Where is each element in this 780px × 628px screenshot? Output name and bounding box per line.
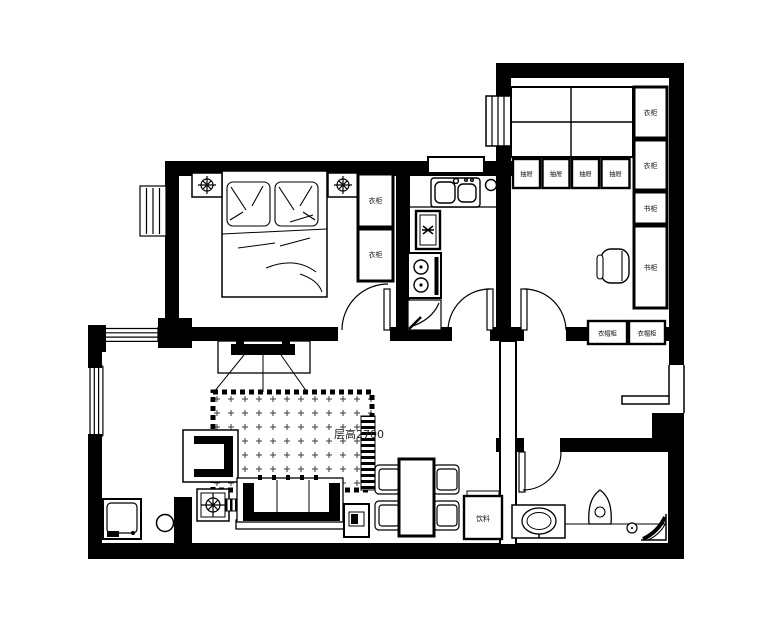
dining-chair <box>433 501 459 530</box>
bedroom-door <box>342 284 390 330</box>
double-bed <box>222 171 327 297</box>
bedroom-wardrobes <box>358 174 393 281</box>
coat-cabinet-right-label: 衣帽柜 <box>638 329 657 338</box>
wall-living-left-lower <box>88 434 102 559</box>
sofa-side-table <box>344 504 369 537</box>
wall-bathroom-right <box>668 413 684 559</box>
nightstand-left <box>192 173 222 197</box>
floor-plan-canvas: 衣柜 衣柜 <box>0 0 780 628</box>
living-room-group <box>103 340 502 539</box>
corner-counter <box>408 300 441 330</box>
floor-outlet <box>225 499 238 511</box>
bedroom-wardrobe-top-label: 衣柜 <box>369 196 383 205</box>
window-bedroom-bay <box>140 186 166 236</box>
tv-icon <box>231 344 295 355</box>
coat-cabinet-left-label: 衣帽柜 <box>598 329 617 338</box>
toilet <box>587 490 613 524</box>
nightstand-right <box>328 173 358 197</box>
study-side-cabinets <box>634 87 667 308</box>
wall-hall-pier <box>490 327 524 341</box>
drawer-4-label: 抽屉 <box>609 169 622 178</box>
wall-living-pier <box>158 318 192 348</box>
shower-corner <box>641 514 666 540</box>
wall-top-study <box>496 63 684 78</box>
window-study-left <box>486 96 511 146</box>
study-wardrobe-top-label: 衣柜 <box>644 108 658 117</box>
bookcase-bottom-label: 书柜 <box>644 263 658 272</box>
wall-bedroom-left <box>165 161 179 341</box>
study-group <box>511 87 667 344</box>
wall-living-left-upper <box>88 325 102 368</box>
corner-cabinet <box>103 499 141 539</box>
window-living-left <box>88 366 103 436</box>
speaker-side-table <box>197 489 229 521</box>
wall-step-right <box>622 365 684 413</box>
drawer-2-label: 抽屉 <box>550 169 563 178</box>
floor-plan-svg: 衣柜 衣柜 <box>0 0 780 628</box>
bedroom-wardrobe-bottom-label: 衣柜 <box>369 250 383 259</box>
kitchen-group <box>408 157 497 330</box>
floor-drain <box>627 523 637 533</box>
wall-bottom-pier <box>174 497 192 547</box>
bathroom-door <box>519 452 561 492</box>
dining-chair <box>375 465 401 494</box>
master-bedroom-group <box>192 171 393 330</box>
closet-grid <box>511 87 633 157</box>
armchair <box>183 430 238 482</box>
study-wardrobe-mid-label: 衣柜 <box>644 161 658 170</box>
kitchen-sink <box>431 178 480 207</box>
desk-chair <box>597 249 629 283</box>
wall-study-right <box>669 63 684 365</box>
bathroom-group <box>512 452 666 540</box>
gas-stove <box>408 253 441 298</box>
dining-chair <box>433 465 459 494</box>
wall-tv <box>214 340 310 392</box>
dining-set <box>375 459 459 536</box>
ceiling-height-label: 层高2700 <box>334 427 384 441</box>
small-appliance-cabinet <box>416 211 440 249</box>
sofa <box>236 475 345 529</box>
dining-chair <box>375 501 401 530</box>
kitchen-door <box>448 289 493 330</box>
washbasin-counter <box>512 505 565 538</box>
study-door <box>521 289 566 330</box>
kitchen-flue <box>428 157 484 173</box>
dining-table <box>399 459 434 536</box>
gas-pipe-circle <box>486 180 497 191</box>
beverage-label: 饮料 <box>476 514 490 523</box>
bookcase-top-label: 书柜 <box>644 204 658 213</box>
window-living-top <box>104 327 158 342</box>
drawer-1-label: 抽屉 <box>520 169 533 178</box>
drawer-3-label: 抽屉 <box>579 169 592 178</box>
stool <box>157 515 174 532</box>
wall-bathroom-top <box>560 438 670 452</box>
